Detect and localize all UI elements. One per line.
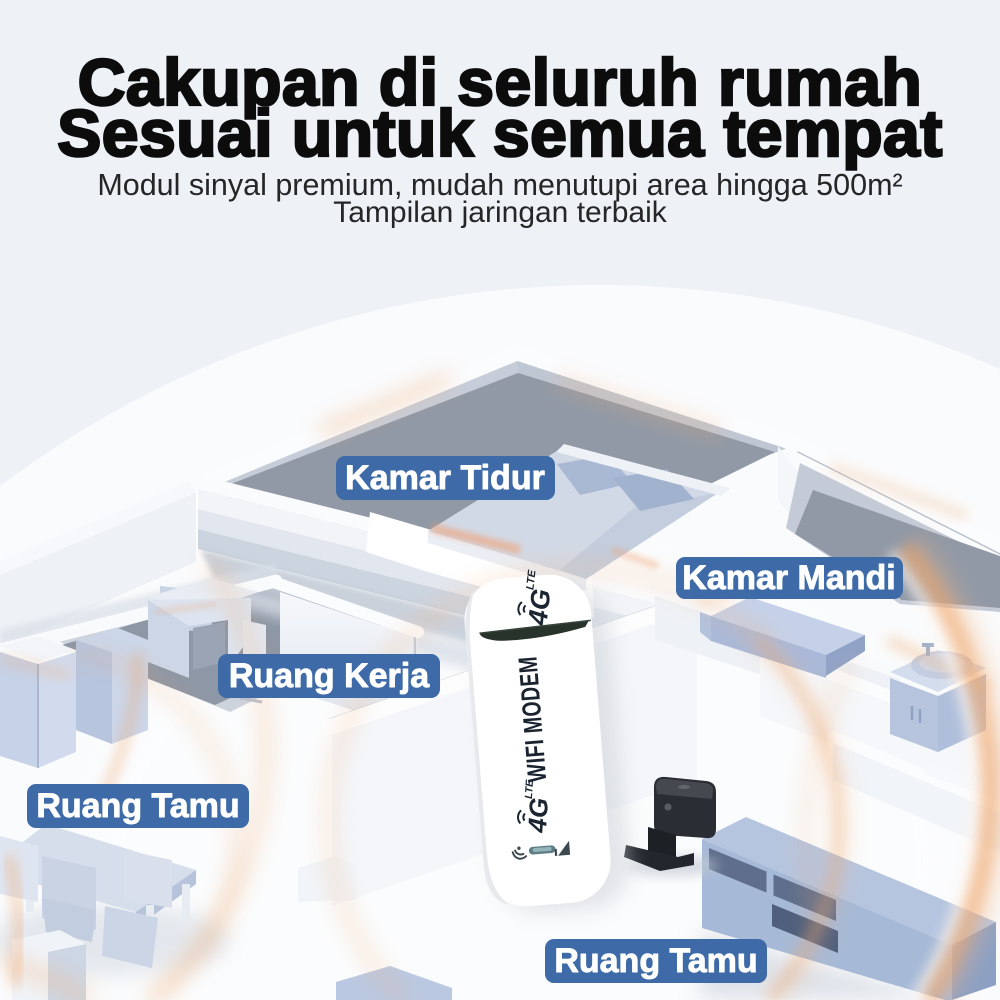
- svg-text:Ruang Tamu: Ruang Tamu: [36, 787, 239, 825]
- svg-text:LTE: LTE: [523, 778, 536, 799]
- svg-text:LTE: LTE: [524, 569, 538, 591]
- svg-text:Kamar Tidur: Kamar Tidur: [345, 459, 545, 497]
- svg-text:Ruang Kerja: Ruang Kerja: [229, 657, 430, 695]
- svg-text:Kamar Mandi: Kamar Mandi: [682, 559, 896, 597]
- svg-text:Ruang Tamu: Ruang Tamu: [554, 942, 757, 980]
- svg-text:4G: 4G: [522, 797, 554, 834]
- svg-text:4G: 4G: [522, 587, 556, 627]
